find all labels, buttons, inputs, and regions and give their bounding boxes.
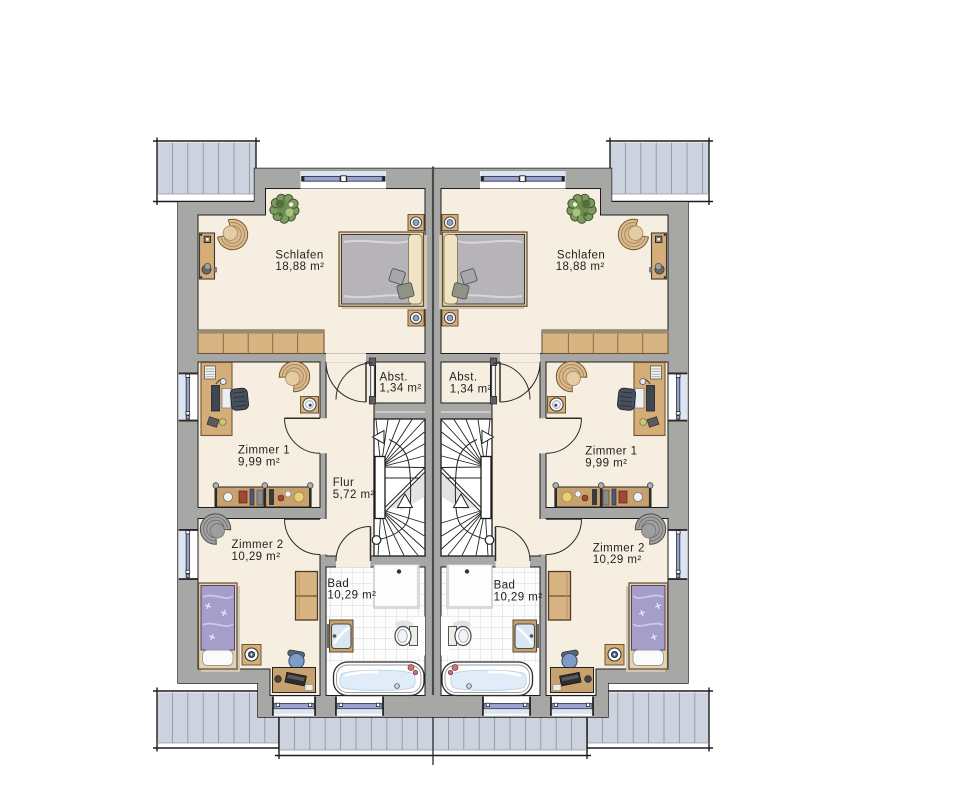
svg-text:18,88 m²: 18,88 m² (275, 261, 324, 273)
svg-text:10,29 m²: 10,29 m² (327, 590, 376, 602)
svg-text:Bad: Bad (327, 578, 349, 590)
svg-text:Abst.: Abst. (449, 371, 477, 383)
svg-text:Zimmer 1: Zimmer 1 (238, 445, 290, 457)
svg-text:10,29 m²: 10,29 m² (593, 554, 642, 566)
svg-text:Zimmer 2: Zimmer 2 (593, 542, 645, 554)
svg-text:Schlafen: Schlafen (275, 249, 323, 261)
svg-text:10,29 m²: 10,29 m² (232, 551, 281, 563)
svg-text:Flur: Flur (333, 477, 355, 489)
svg-text:1,34 m²: 1,34 m² (450, 383, 492, 395)
svg-text:1,34 m²: 1,34 m² (380, 382, 422, 394)
svg-text:Schlafen: Schlafen (557, 249, 605, 261)
svg-text:10,29 m²: 10,29 m² (494, 591, 543, 603)
svg-text:Bad: Bad (494, 579, 516, 591)
svg-text:9,99 m²: 9,99 m² (238, 456, 280, 468)
svg-text:5,72 m²: 5,72 m² (333, 489, 375, 501)
svg-text:Zimmer 2: Zimmer 2 (232, 539, 284, 551)
svg-text:18,88 m²: 18,88 m² (556, 261, 605, 273)
svg-text:9,99 m²: 9,99 m² (585, 457, 627, 469)
svg-text:Zimmer 1: Zimmer 1 (585, 446, 637, 458)
